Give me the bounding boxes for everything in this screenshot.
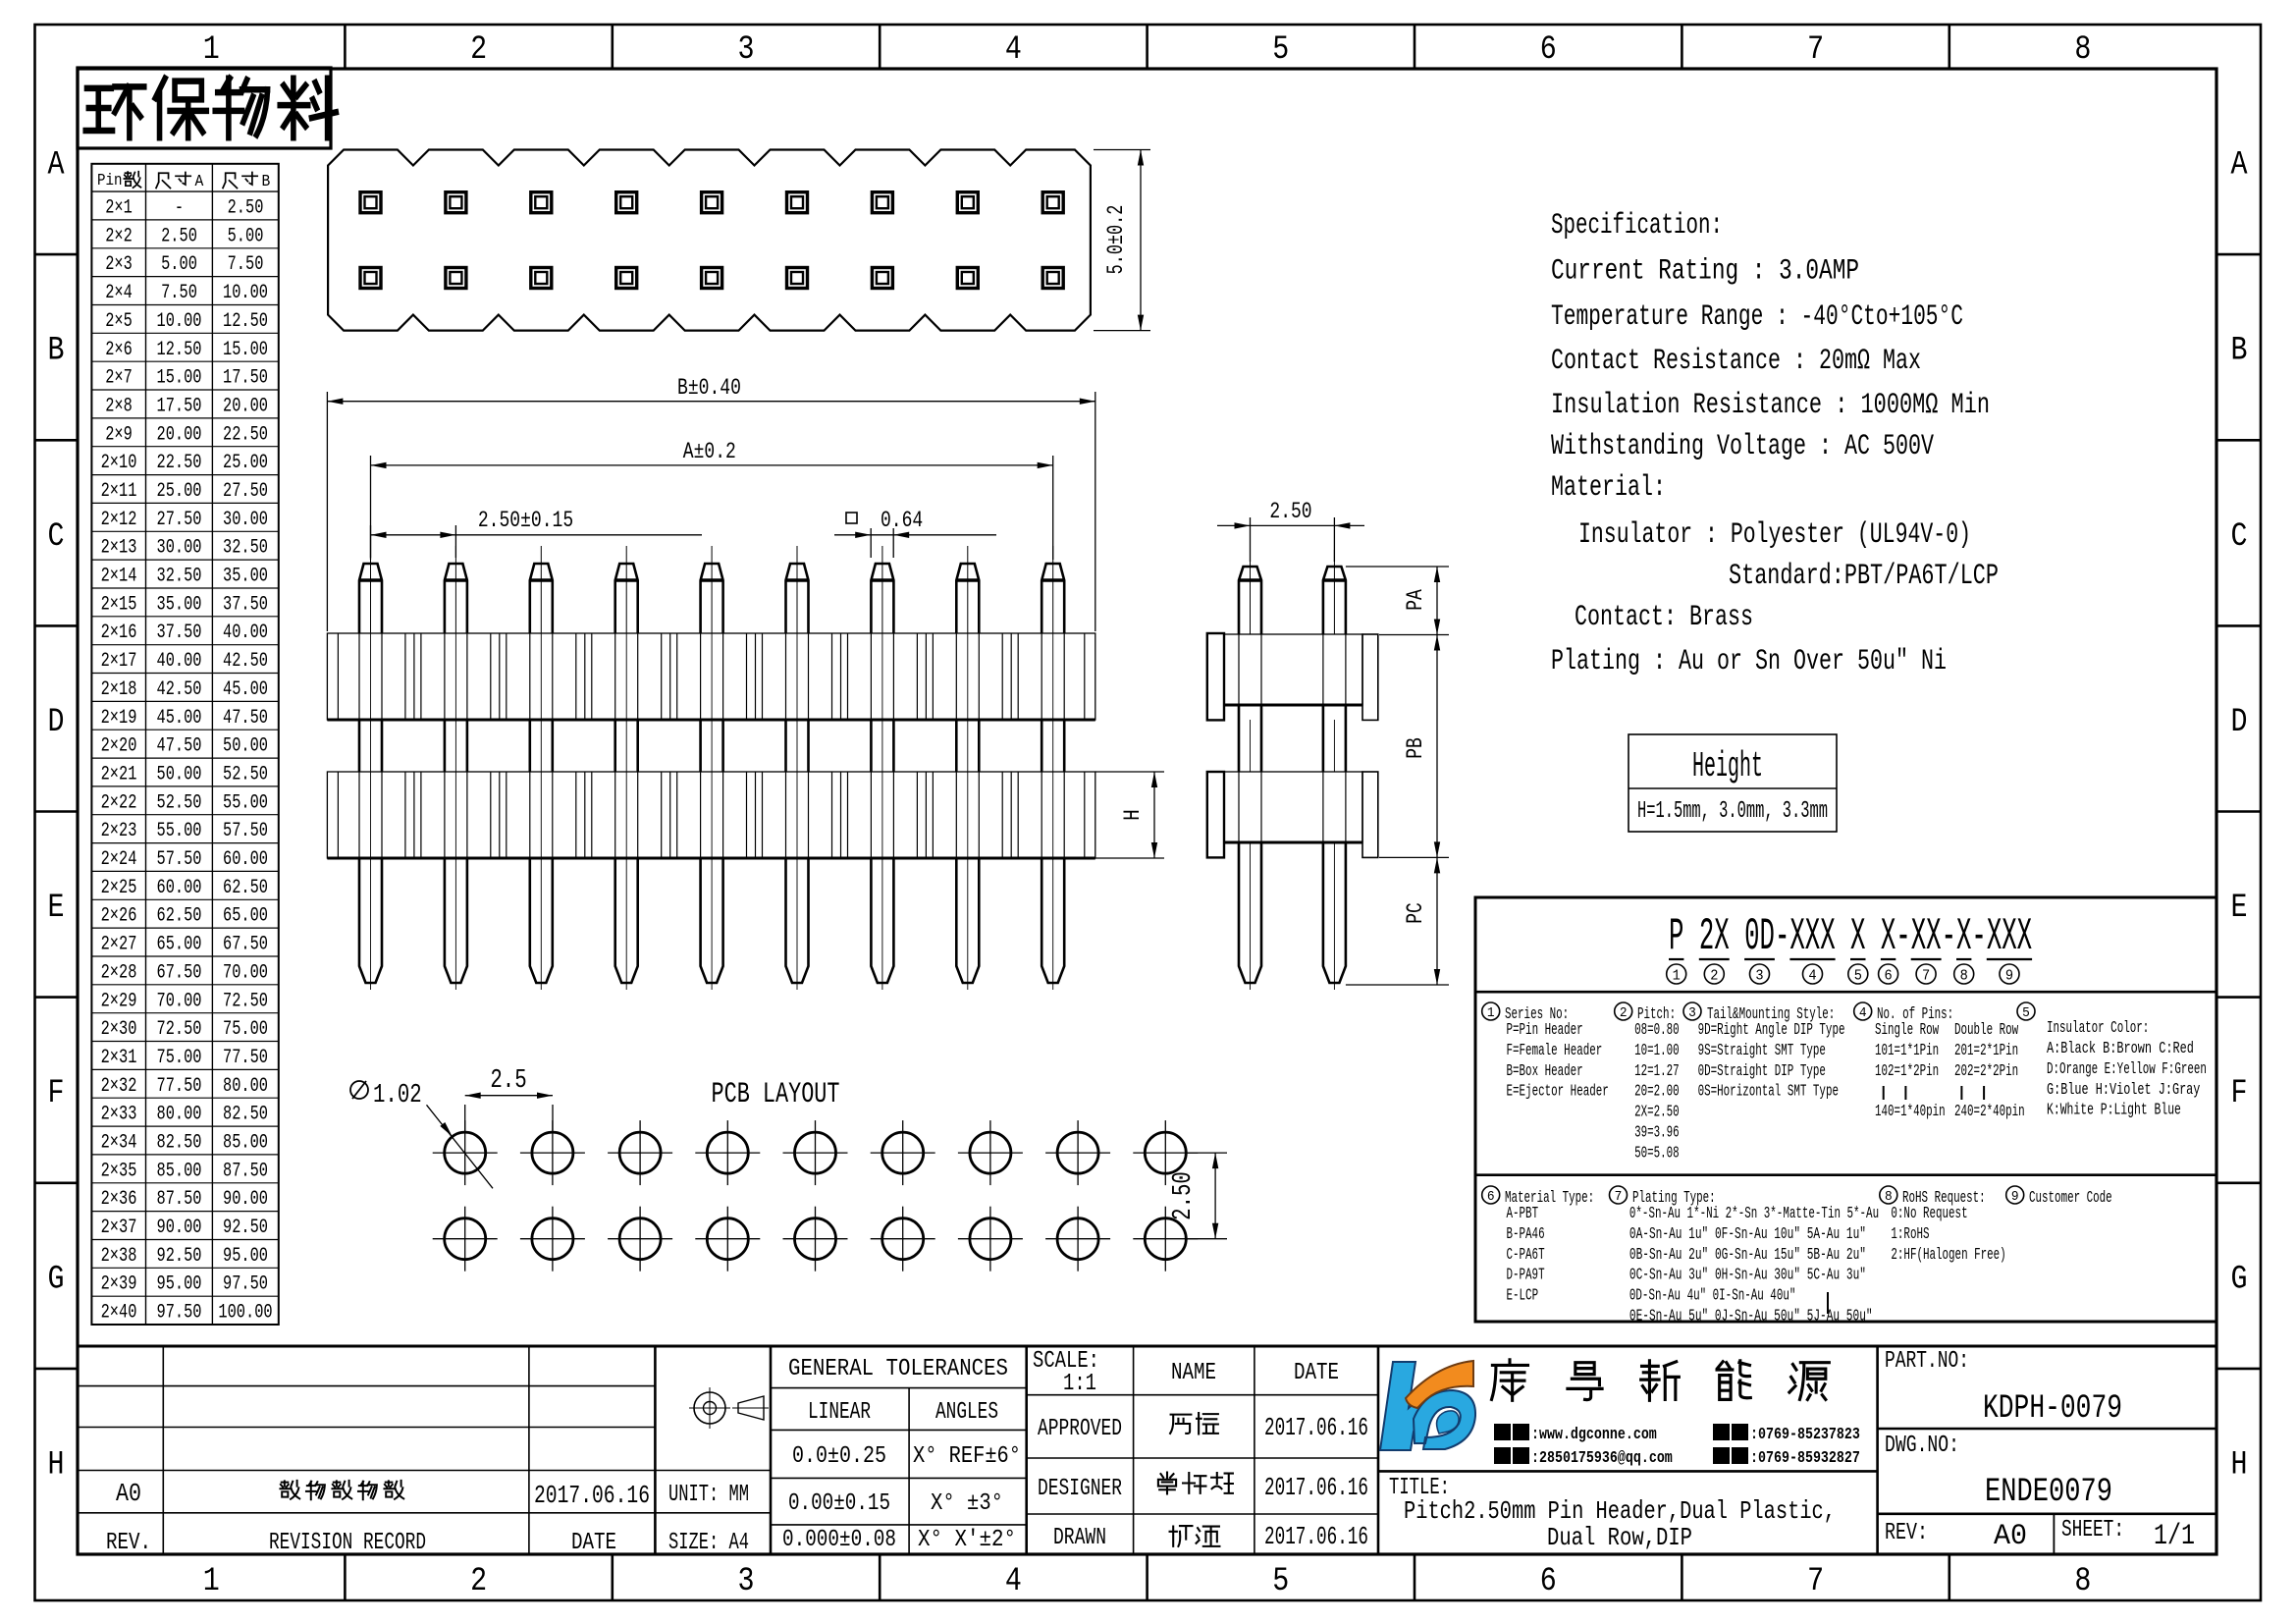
svg-text:60.00: 60.00 — [223, 848, 268, 871]
svg-text:35.00: 35.00 — [223, 566, 268, 588]
svg-text:72.50: 72.50 — [157, 1018, 202, 1041]
svg-text:12.50: 12.50 — [223, 310, 268, 333]
svg-text:Single Row: Single Row — [1875, 1020, 1939, 1039]
svg-text:Specification:: Specification: — [1551, 209, 1723, 243]
svg-text:202=2*2Pin: 202=2*2Pin — [1954, 1061, 2018, 1080]
svg-text:2×10: 2×10 — [101, 452, 137, 474]
svg-text:PA: PA — [1403, 589, 1428, 611]
svg-text:57.50: 57.50 — [157, 848, 202, 871]
svg-text:5: 5 — [2022, 1005, 2030, 1021]
svg-text:D-PA9T: D-PA9T — [1507, 1266, 1545, 1284]
svg-text:7: 7 — [1807, 1563, 1824, 1600]
svg-text:25.00: 25.00 — [157, 480, 202, 503]
svg-text:-: - — [175, 197, 184, 220]
svg-text:Pin: Pin — [97, 172, 123, 190]
svg-text:102=1*2Pin: 102=1*2Pin — [1875, 1061, 1939, 1080]
svg-text:B±0.40: B±0.40 — [677, 375, 741, 401]
svg-text:0B-Sn-Au 2u″ 0G-Sn-Au 15u″ 5B: 0B-Sn-Au 2u″ 0G-Sn-Au 15u″ 5B-Au 2u″ — [1629, 1245, 1866, 1264]
svg-text:10.00: 10.00 — [223, 282, 268, 304]
svg-text:2.50: 2.50 — [161, 225, 197, 247]
svg-text:9: 9 — [2011, 1189, 2019, 1205]
svg-text:5: 5 — [1272, 31, 1289, 69]
svg-text:GENERAL TOLERANCES: GENERAL TOLERANCES — [788, 1356, 1008, 1382]
svg-text:2×17: 2×17 — [101, 650, 137, 673]
svg-text:5.0±0.2: 5.0±0.2 — [1103, 205, 1129, 275]
svg-text:08=0.80: 08=0.80 — [1634, 1020, 1680, 1039]
svg-text:30.00: 30.00 — [157, 537, 202, 560]
svg-text:47.50: 47.50 — [157, 735, 202, 758]
svg-text:E-LCP: E-LCP — [1507, 1286, 1539, 1305]
svg-text:42.50: 42.50 — [157, 678, 202, 701]
svg-text:201=2*1Pin: 201=2*1Pin — [1954, 1041, 2018, 1059]
svg-text:Plating : Au or Sn Over 50u″ N: Plating : Au or Sn Over 50u″ Ni — [1551, 645, 1947, 678]
svg-text:2×18: 2×18 — [101, 678, 137, 701]
svg-text:A-PBT: A-PBT — [1507, 1204, 1539, 1222]
svg-text:7.50: 7.50 — [228, 253, 264, 276]
svg-text:E: E — [2231, 890, 2248, 927]
svg-text::www.dgconne.com: :www.dgconne.com — [1531, 1426, 1657, 1444]
svg-text:E: E — [48, 890, 65, 927]
svg-text:65.00: 65.00 — [223, 905, 268, 928]
svg-text:H: H — [1120, 809, 1146, 821]
svg-text:D: D — [2231, 704, 2248, 741]
svg-text:D: D — [48, 704, 65, 741]
svg-text:52.50: 52.50 — [157, 791, 202, 814]
svg-text:5.00: 5.00 — [161, 253, 197, 276]
svg-text:85.00: 85.00 — [157, 1160, 202, 1182]
svg-text:30.00: 30.00 — [223, 509, 268, 531]
svg-text:7: 7 — [1807, 31, 1824, 69]
svg-text:2×20: 2×20 — [101, 735, 137, 758]
svg-text:37.50: 37.50 — [223, 593, 268, 616]
svg-text:0.0±0.25: 0.0±0.25 — [792, 1443, 886, 1470]
svg-text:2: 2 — [1710, 967, 1718, 984]
svg-text:Height: Height — [1692, 746, 1763, 786]
svg-text:7.50: 7.50 — [161, 282, 197, 304]
svg-text:ENDE0079: ENDE0079 — [1985, 1474, 2112, 1511]
svg-text:2×33: 2×33 — [101, 1104, 137, 1126]
svg-text:67.50: 67.50 — [157, 961, 202, 984]
svg-text:35.00: 35.00 — [157, 593, 202, 616]
svg-text:12.50: 12.50 — [157, 339, 202, 361]
svg-text:12=1.27: 12=1.27 — [1634, 1061, 1680, 1080]
svg-text:B=Box Header: B=Box Header — [1507, 1061, 1583, 1080]
svg-text:75.00: 75.00 — [223, 1018, 268, 1041]
svg-text:K:White P:Light Blue: K:White P:Light Blue — [2047, 1101, 2181, 1119]
svg-text:10=1.00: 10=1.00 — [1634, 1041, 1680, 1059]
svg-text:2×24: 2×24 — [101, 848, 137, 871]
svg-text:UNIT: MM: UNIT: MM — [668, 1482, 749, 1508]
svg-text:2×11: 2×11 — [101, 480, 137, 503]
svg-text:22.50: 22.50 — [157, 452, 202, 474]
svg-text:50.00: 50.00 — [157, 764, 202, 786]
svg-text:3: 3 — [738, 1563, 755, 1600]
svg-text:2×26: 2×26 — [101, 905, 137, 928]
svg-text:ANGLES: ANGLES — [935, 1399, 998, 1426]
svg-text:Double Row: Double Row — [1954, 1020, 2018, 1039]
svg-text:PB: PB — [1403, 737, 1428, 759]
svg-text::0769-85237823: :0769-85237823 — [1750, 1426, 1860, 1444]
svg-text:1:1: 1:1 — [1063, 1371, 1096, 1397]
svg-text:2×25: 2×25 — [101, 877, 137, 899]
svg-text:A: A — [2231, 147, 2248, 185]
svg-text:72.50: 72.50 — [223, 990, 268, 1012]
svg-text:B: B — [262, 173, 271, 191]
svg-text:92.50: 92.50 — [157, 1245, 202, 1268]
svg-text:A: A — [48, 147, 65, 185]
svg-text:52.50: 52.50 — [223, 764, 268, 786]
svg-text:2017.06.16: 2017.06.16 — [1264, 1473, 1368, 1502]
svg-text:50=5.08: 50=5.08 — [1634, 1143, 1680, 1162]
svg-text:32.50: 32.50 — [157, 566, 202, 588]
svg-text:65.00: 65.00 — [157, 934, 202, 956]
svg-text:1:RoHS: 1:RoHS — [1891, 1224, 1929, 1243]
svg-text:5: 5 — [1272, 1563, 1289, 1600]
svg-text:0*-Sn-Au 1*-Ni 2*-Sn 3*-Matte-: 0*-Sn-Au 1*-Ni 2*-Sn 3*-Matte-Tin 5*-Au — [1629, 1204, 1879, 1222]
svg-text:REV:: REV: — [1885, 1520, 1928, 1546]
svg-text:82.50: 82.50 — [157, 1132, 202, 1155]
svg-text:67.50: 67.50 — [223, 934, 268, 956]
svg-text:6: 6 — [1540, 31, 1557, 69]
svg-text:2×21: 2×21 — [101, 764, 137, 786]
svg-text:27.50: 27.50 — [223, 480, 268, 503]
svg-text:7: 7 — [1615, 1189, 1623, 1205]
svg-text:2×9: 2×9 — [105, 423, 133, 446]
svg-text:2×2: 2×2 — [105, 225, 133, 247]
svg-text:1: 1 — [203, 31, 220, 69]
svg-text:2×29: 2×29 — [101, 990, 137, 1012]
svg-text:Customer Code: Customer Code — [2029, 1188, 2112, 1207]
svg-text:3: 3 — [1688, 1005, 1696, 1021]
svg-text:2.50±0.15: 2.50±0.15 — [478, 508, 573, 533]
svg-text:DWG.NO:: DWG.NO: — [1885, 1433, 1959, 1459]
svg-text:F: F — [2231, 1075, 2248, 1112]
svg-text:32.50: 32.50 — [223, 537, 268, 560]
svg-text:2×15: 2×15 — [101, 593, 137, 616]
svg-text:3: 3 — [738, 31, 755, 69]
svg-text:2:HF(Halogen Free): 2:HF(Halogen Free) — [1891, 1245, 2005, 1264]
svg-text:2×12: 2×12 — [101, 509, 137, 531]
svg-text:F=Female Header: F=Female Header — [1507, 1041, 1603, 1059]
svg-text:100.00: 100.00 — [218, 1302, 272, 1325]
svg-text:87.50: 87.50 — [157, 1188, 202, 1211]
svg-text:Standard:PBT/PA6T/LCP: Standard:PBT/PA6T/LCP — [1729, 560, 1999, 593]
svg-text:0D=Straight DIP Type: 0D=Straight DIP Type — [1698, 1061, 1826, 1080]
svg-text:2×38: 2×38 — [101, 1245, 137, 1268]
svg-text:PCB LAYOUT: PCB LAYOUT — [712, 1078, 840, 1111]
svg-text:DRAWN: DRAWN — [1053, 1525, 1106, 1551]
svg-text:B-PA46: B-PA46 — [1507, 1224, 1545, 1243]
svg-text:15.00: 15.00 — [157, 367, 202, 390]
svg-text:8: 8 — [2074, 1563, 2091, 1600]
svg-text:Temperature Range : -40°Cto+10: Temperature Range : -40°Cto+105°C — [1551, 300, 1963, 334]
svg-text:6: 6 — [1885, 967, 1893, 984]
svg-text:95.00: 95.00 — [157, 1273, 202, 1296]
svg-text:PC: PC — [1403, 902, 1428, 924]
svg-text:KDPH-0079: KDPH-0079 — [1983, 1390, 2122, 1428]
svg-text:7: 7 — [1922, 967, 1930, 984]
svg-text:APPROVED: APPROVED — [1038, 1416, 1122, 1442]
svg-text:DESIGNER: DESIGNER — [1038, 1476, 1122, 1502]
svg-text:Insulator : Polyester (UL94V-0: Insulator : Polyester (UL94V-0) — [1578, 518, 1971, 552]
svg-text:45.00: 45.00 — [157, 707, 202, 730]
svg-text:0E-Sn-Au 5u″ 0J-Sn-Au 50u″ 5J: 0E-Sn-Au 5u″ 0J-Sn-Au 50u″ 5J-Au 50u″ — [1629, 1307, 1873, 1326]
svg-text:2017.06.16: 2017.06.16 — [534, 1481, 650, 1510]
svg-text:D:Orange E:Yellow F:Green: D:Orange E:Yellow F:Green — [2047, 1059, 2207, 1078]
svg-text:75.00: 75.00 — [157, 1047, 202, 1069]
svg-text:F: F — [48, 1075, 65, 1112]
svg-text:1: 1 — [203, 1563, 220, 1600]
svg-text:37.50: 37.50 — [157, 622, 202, 644]
svg-text:70.00: 70.00 — [223, 961, 268, 984]
svg-text:40.00: 40.00 — [157, 650, 202, 673]
svg-text:27.50: 27.50 — [157, 509, 202, 531]
svg-text:25.00: 25.00 — [223, 452, 268, 474]
svg-text:1: 1 — [1673, 967, 1681, 984]
svg-text:2×4: 2×4 — [105, 282, 133, 304]
svg-text:2017.06.16: 2017.06.16 — [1264, 1413, 1368, 1442]
svg-text:2: 2 — [470, 31, 487, 69]
svg-text:62.50: 62.50 — [223, 877, 268, 899]
svg-text:0.64: 0.64 — [881, 508, 923, 533]
svg-text:2×39: 2×39 — [101, 1273, 137, 1296]
svg-text:1/1: 1/1 — [2154, 1520, 2195, 1553]
svg-text:3: 3 — [1755, 967, 1763, 984]
svg-text:SIZE: A4: SIZE: A4 — [668, 1530, 749, 1556]
svg-text:Current Rating : 3.0AMP: Current Rating : 3.0AMP — [1551, 255, 1859, 289]
svg-text:Contact: Brass: Contact: Brass — [1575, 601, 1753, 634]
svg-text:4: 4 — [1005, 1563, 1022, 1600]
svg-text:2×28: 2×28 — [101, 961, 137, 984]
svg-text:P 2X 0D-XXX X X-XX-X-XXX: P 2X 0D-XXX X X-XX-X-XXX — [1669, 911, 2032, 962]
svg-text:1: 1 — [1487, 1005, 1495, 1021]
svg-text:140=1*40pin: 140=1*40pin — [1875, 1102, 1946, 1120]
svg-text:Withstanding Voltage : AC 500V: Withstanding Voltage : AC 500V — [1551, 430, 1934, 463]
svg-text:2: 2 — [470, 1563, 487, 1600]
svg-text:5.00: 5.00 — [228, 225, 264, 247]
svg-text:REVISION RECORD: REVISION RECORD — [269, 1530, 426, 1556]
svg-text:0.000±0.08: 0.000±0.08 — [782, 1527, 896, 1553]
svg-text:8: 8 — [1960, 967, 1968, 984]
svg-text:PART.NO:: PART.NO: — [1885, 1348, 1969, 1375]
svg-text::0769-85932827: :0769-85932827 — [1750, 1449, 1860, 1468]
svg-text:90.00: 90.00 — [157, 1217, 202, 1239]
svg-text:P=Pin Header: P=Pin Header — [1507, 1020, 1583, 1039]
svg-text:2×23: 2×23 — [101, 820, 137, 842]
svg-text:80.00: 80.00 — [223, 1075, 268, 1098]
svg-text:G: G — [48, 1261, 65, 1298]
svg-text:2.50: 2.50 — [1269, 499, 1311, 524]
svg-text:REV.: REV. — [106, 1530, 151, 1556]
svg-text:Insulator Color:: Insulator Color: — [2047, 1018, 2149, 1037]
svg-text:6: 6 — [1540, 1563, 1557, 1600]
svg-text::2850175936@qq.com: :2850175936@qq.com — [1531, 1449, 1673, 1468]
svg-text:H: H — [48, 1447, 65, 1485]
svg-text:0C-Sn-Au 3u″ 0H-Sn-Au 30u″ 5C: 0C-Sn-Au 3u″ 0H-Sn-Au 30u″ 5C-Au 3u″ — [1629, 1266, 1866, 1284]
svg-text:95.00: 95.00 — [223, 1245, 268, 1268]
svg-text:G:Blue H:Violet J:Gray: G:Blue H:Violet J:Gray — [2047, 1080, 2200, 1099]
svg-text:90.00: 90.00 — [223, 1188, 268, 1211]
svg-text:2×14: 2×14 — [101, 566, 137, 588]
svg-text:2×1: 2×1 — [105, 197, 133, 220]
svg-text:2×36: 2×36 — [101, 1188, 137, 1211]
svg-text:85.00: 85.00 — [223, 1132, 268, 1155]
svg-text:50.00: 50.00 — [223, 735, 268, 758]
svg-text:0S=Horizontal SMT Type: 0S=Horizontal SMT Type — [1698, 1082, 1839, 1101]
svg-text:Pitch2.50mm Pin Header,Dual Pl: Pitch2.50mm Pin Header,Dual Plastic, — [1404, 1496, 1836, 1526]
svg-text:X° REF±6°: X° REF±6° — [913, 1443, 1021, 1470]
svg-text:97.50: 97.50 — [157, 1302, 202, 1325]
svg-text:X° X'±2°: X° X'±2° — [918, 1527, 1016, 1553]
svg-text:15.00: 15.00 — [223, 339, 268, 361]
svg-text:2×34: 2×34 — [101, 1132, 137, 1155]
svg-text:60.00: 60.00 — [157, 877, 202, 899]
svg-text:A: A — [195, 173, 204, 191]
svg-text:E=Ejector Header: E=Ejector Header — [1507, 1082, 1609, 1101]
svg-text:55.00: 55.00 — [157, 820, 202, 842]
svg-text:2×35: 2×35 — [101, 1160, 137, 1182]
svg-text:39=3.96: 39=3.96 — [1634, 1123, 1680, 1142]
svg-text:H: H — [2231, 1447, 2248, 1485]
svg-text:2×7: 2×7 — [105, 367, 133, 390]
svg-text:20.00: 20.00 — [223, 396, 268, 418]
svg-text:55.00: 55.00 — [223, 791, 268, 814]
svg-text:C: C — [2231, 518, 2248, 556]
svg-text:NAME: NAME — [1171, 1360, 1216, 1386]
svg-text:9D=Right Angle DIP Type: 9D=Right Angle DIP Type — [1698, 1020, 1845, 1039]
svg-text:0D-Sn-Au 4u″ 0I-Sn-Au 40u″: 0D-Sn-Au 4u″ 0I-Sn-Au 40u″ — [1629, 1286, 1796, 1305]
svg-text:DATE: DATE — [1294, 1360, 1339, 1386]
svg-text:2×8: 2×8 — [105, 396, 133, 418]
svg-text:0A-Sn-Au 1u″ 0F-Sn-Au 10u″ 5A: 0A-Sn-Au 1u″ 0F-Sn-Au 10u″ 5A-Au 1u″ — [1629, 1224, 1866, 1243]
svg-text:9S=Straight SMT Type: 9S=Straight SMT Type — [1698, 1041, 1826, 1059]
svg-text:H=1.5mm, 3.0mm, 3.3mm: H=1.5mm, 3.0mm, 3.3mm — [1637, 798, 1828, 825]
svg-text:42.50: 42.50 — [223, 650, 268, 673]
svg-text:2×37: 2×37 — [101, 1217, 137, 1239]
svg-text:Material:: Material: — [1551, 471, 1666, 505]
svg-text:20=2.00: 20=2.00 — [1634, 1082, 1680, 1101]
svg-text:2×13: 2×13 — [101, 537, 137, 560]
svg-text:2×40: 2×40 — [101, 1302, 137, 1325]
svg-text:4: 4 — [1005, 31, 1022, 69]
svg-text:8: 8 — [1885, 1189, 1893, 1205]
svg-text:45.00: 45.00 — [223, 678, 268, 701]
svg-text:70.00: 70.00 — [157, 990, 202, 1012]
svg-text:2×22: 2×22 — [101, 791, 137, 814]
svg-text:2×19: 2×19 — [101, 707, 137, 730]
svg-text:2×27: 2×27 — [101, 934, 137, 956]
svg-text:2X=2.50: 2X=2.50 — [1634, 1103, 1680, 1121]
svg-text:2×5: 2×5 — [105, 310, 133, 333]
svg-text:G: G — [2231, 1261, 2248, 1298]
svg-text:A±0.2: A±0.2 — [683, 439, 736, 464]
svg-text:2.5: 2.5 — [490, 1066, 526, 1096]
svg-text:17.50: 17.50 — [223, 367, 268, 390]
svg-text:77.50: 77.50 — [223, 1047, 268, 1069]
svg-text:Dual Row,DIP: Dual Row,DIP — [1547, 1523, 1692, 1552]
svg-text:4: 4 — [1808, 967, 1816, 984]
svg-text:240=2*40pin: 240=2*40pin — [1954, 1102, 2025, 1120]
svg-text:2×16: 2×16 — [101, 622, 137, 644]
svg-text:8: 8 — [2074, 31, 2091, 69]
svg-text:2×6: 2×6 — [105, 339, 133, 361]
svg-text:B: B — [48, 333, 65, 370]
svg-text:10.00: 10.00 — [157, 310, 202, 333]
svg-text:2×3: 2×3 — [105, 253, 133, 276]
svg-text:62.50: 62.50 — [157, 905, 202, 928]
svg-text:C: C — [48, 518, 65, 556]
svg-text:0.00±0.15: 0.00±0.15 — [788, 1490, 890, 1517]
svg-text:Insulation Resistance : 1000MΩ: Insulation Resistance : 1000MΩ Min — [1551, 389, 1990, 422]
svg-text:2: 2 — [1620, 1005, 1628, 1021]
svg-text:2×31: 2×31 — [101, 1047, 137, 1069]
svg-text:2×32: 2×32 — [101, 1075, 137, 1098]
svg-text:LINEAR: LINEAR — [808, 1399, 871, 1426]
svg-text:9: 9 — [2005, 967, 2013, 984]
svg-text:2017.06.16: 2017.06.16 — [1264, 1522, 1368, 1551]
svg-text:5: 5 — [1854, 967, 1862, 984]
svg-text:SHEET:: SHEET: — [2061, 1517, 2124, 1543]
svg-text:77.50: 77.50 — [157, 1075, 202, 1098]
svg-text:47.50: 47.50 — [223, 707, 268, 730]
svg-text:87.50: 87.50 — [223, 1160, 268, 1182]
svg-text:B: B — [2231, 333, 2248, 370]
svg-text:C-PA6T: C-PA6T — [1507, 1245, 1545, 1264]
svg-text:2×30: 2×30 — [101, 1018, 137, 1041]
svg-text:17.50: 17.50 — [157, 396, 202, 418]
svg-text:Contact Resistance : 20mΩ Max: Contact Resistance : 20mΩ Max — [1551, 345, 1921, 378]
svg-text:1.02: 1.02 — [373, 1081, 422, 1110]
svg-text:A0: A0 — [116, 1479, 141, 1508]
svg-text:22.50: 22.50 — [223, 423, 268, 446]
svg-text:97.50: 97.50 — [223, 1273, 268, 1296]
svg-text:A0: A0 — [1994, 1520, 2027, 1553]
svg-text:DATE: DATE — [571, 1530, 616, 1556]
svg-text:0:No Request: 0:No Request — [1891, 1204, 1967, 1222]
svg-text:82.50: 82.50 — [223, 1104, 268, 1126]
svg-text:80.00: 80.00 — [157, 1104, 202, 1126]
svg-text:2.50: 2.50 — [228, 197, 264, 220]
svg-text:92.50: 92.50 — [223, 1217, 268, 1239]
svg-text:57.50: 57.50 — [223, 820, 268, 842]
svg-text:2.50: 2.50 — [1169, 1171, 1199, 1220]
svg-text:20.00: 20.00 — [157, 423, 202, 446]
svg-text:A:Black B:Brown C:Red: A:Black B:Brown C:Red — [2047, 1039, 2194, 1057]
svg-text:4: 4 — [1859, 1005, 1867, 1021]
svg-text:40.00: 40.00 — [223, 622, 268, 644]
svg-text:6: 6 — [1487, 1189, 1495, 1205]
svg-text:X° ±3°: X° ±3° — [931, 1490, 1003, 1517]
svg-text:101=1*1Pin: 101=1*1Pin — [1875, 1041, 1939, 1059]
